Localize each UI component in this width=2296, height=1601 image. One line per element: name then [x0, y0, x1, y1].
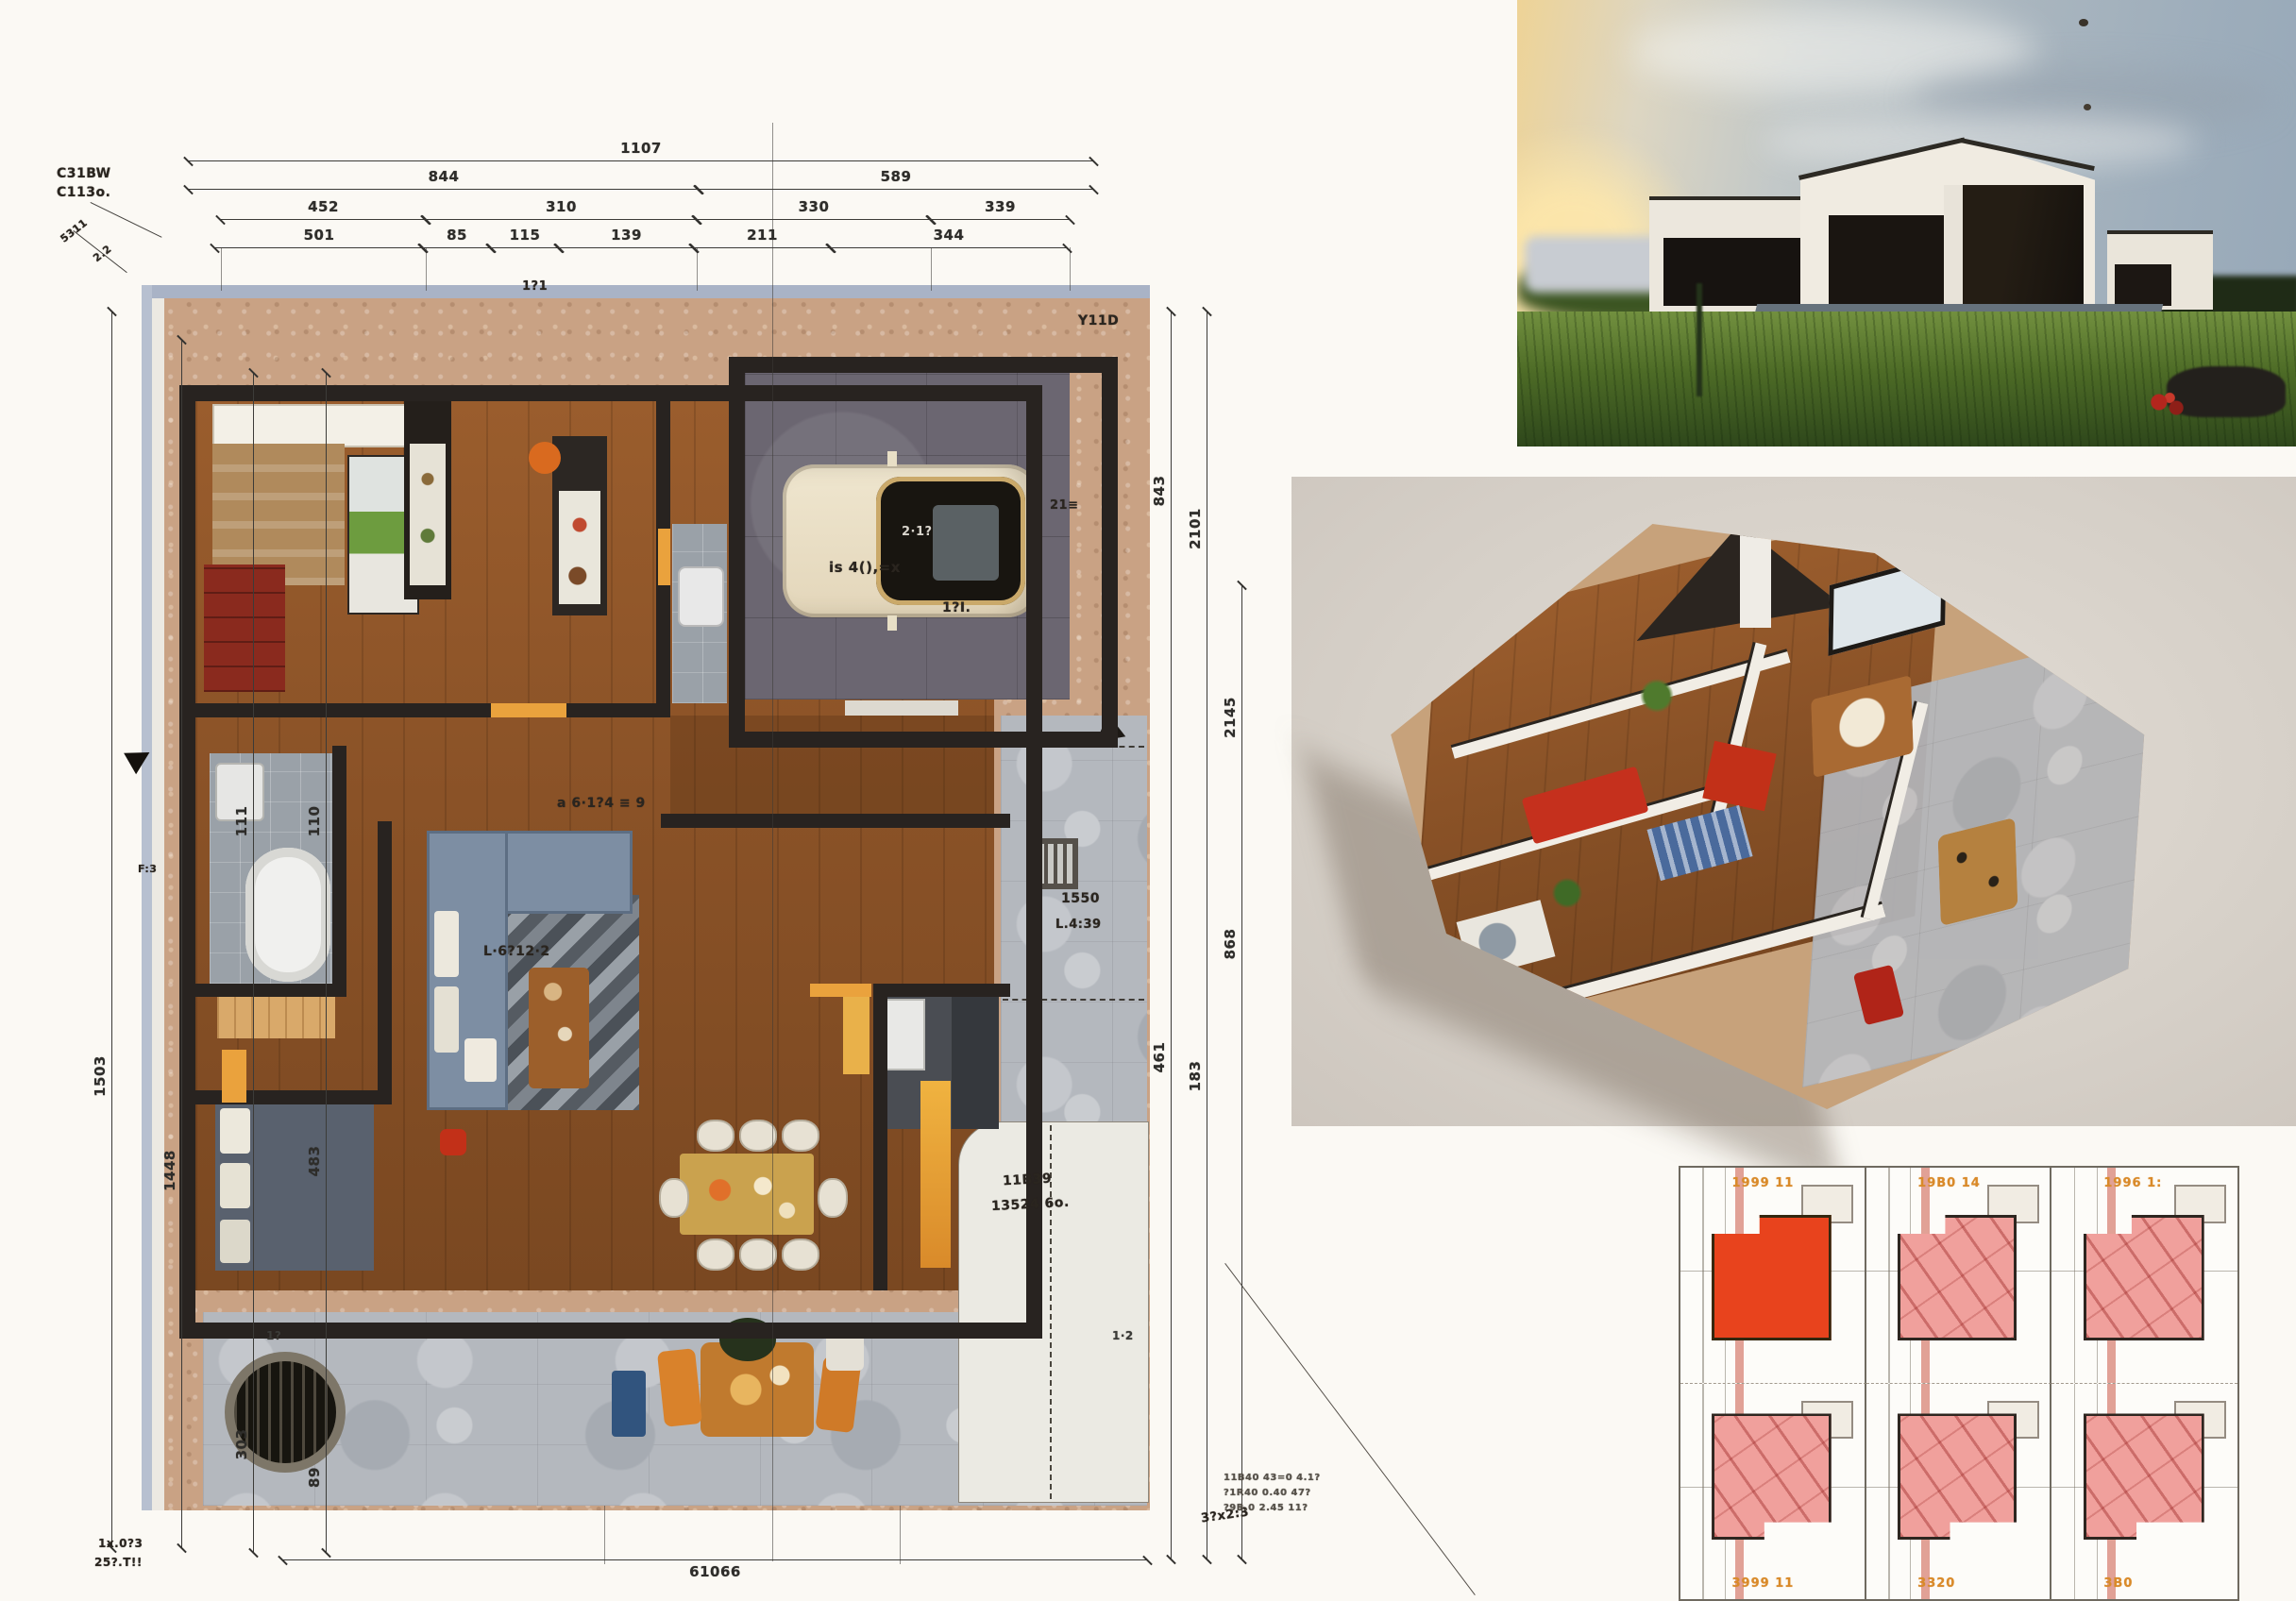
dim-label: 339	[985, 198, 1016, 215]
sapling	[1697, 283, 1702, 396]
wall-living-west	[378, 821, 392, 1104]
annotation-text: C113o.	[57, 185, 110, 200]
wall-kitchen-west	[873, 984, 887, 1290]
highlighted-room-shape	[2084, 1413, 2204, 1540]
dim-line-h	[423, 247, 491, 248]
dim-line-h	[189, 189, 699, 190]
dim-label: 1503	[92, 1055, 109, 1097]
wall-bath-south	[195, 984, 346, 997]
wall-kitchen-north	[873, 984, 1010, 997]
plan-variant-thumbnail: 3999 11	[1680, 1384, 1866, 1600]
dim-label: 1448	[161, 1150, 178, 1191]
dim-line-v	[253, 373, 254, 1553]
dim-label: 844	[429, 168, 460, 185]
annotation-text: 25?.T!!	[94, 1556, 143, 1569]
variant-code: 19B0 14	[1917, 1176, 1981, 1190]
variant-code: 3320	[1917, 1576, 1955, 1591]
plan-edge-band-top	[142, 285, 1150, 298]
annotation-text: L·6?12·2	[483, 944, 550, 959]
plan-edge-gap-left	[152, 298, 164, 1510]
dim-label: 452	[308, 198, 339, 215]
dim-label: 1107	[620, 140, 662, 157]
variant-code: 1996 1:	[2103, 1176, 2162, 1190]
threshold-1	[491, 703, 566, 717]
dim-line-h	[831, 247, 1067, 248]
drop-tick-4	[931, 247, 932, 291]
red-flowers	[2146, 391, 2189, 419]
plan-edge-band-left	[142, 285, 152, 1510]
house-glass-right	[1963, 185, 2084, 310]
dim-line-h	[697, 219, 931, 220]
variant-code: 3999 11	[1732, 1576, 1795, 1591]
bird-speck-2	[2084, 104, 2091, 110]
highlighted-room-shape	[2084, 1215, 2204, 1340]
dim-line-h	[931, 219, 1070, 220]
dim-line-v	[326, 373, 327, 1553]
sketch-line	[2074, 1168, 2076, 1383]
annotation-text: C31BW	[57, 166, 111, 181]
dim-label: 330	[799, 198, 830, 215]
highlighted-room-shape	[1898, 1413, 2017, 1540]
dim-label: 843	[1151, 476, 1168, 507]
highlighted-room-shape	[1712, 1413, 1832, 1540]
plan-variant-thumbnail: 3B0	[2051, 1384, 2237, 1600]
dim-line-h	[221, 219, 426, 220]
drop-tick-2	[426, 247, 427, 291]
dim-label: 2145	[1222, 697, 1239, 738]
threshold-3	[810, 984, 871, 997]
architectural-sheet: 1107844589452310330339501851151392113446…	[0, 0, 2296, 1601]
dim-label: 89	[306, 1467, 323, 1488]
plan-variant-thumbnail: 1999 11	[1680, 1168, 1866, 1384]
dim-label: 344	[934, 227, 965, 244]
dim-label: 183	[1187, 1061, 1204, 1092]
annotation-text: 1x.0?3	[98, 1537, 143, 1550]
annotation-text: 1?1	[522, 279, 548, 294]
annotation-text: 1?	[266, 1329, 281, 1342]
drop-tick-5	[1070, 247, 1071, 291]
annotation-text: 1?I.	[942, 600, 971, 615]
sketch-line	[1888, 1168, 1890, 1383]
drop-tick-1	[221, 247, 222, 291]
annotation-text: 2·1?	[902, 525, 933, 539]
dim-label: 589	[881, 168, 912, 185]
construction-line-v2	[604, 1506, 605, 1564]
dim-label: 501	[304, 227, 335, 244]
wall-bed2-north	[179, 1090, 382, 1104]
iso-red-wardrobe	[1702, 740, 1777, 811]
annotation-text: 11B40 43=0 4.1?	[1224, 1473, 1321, 1483]
plan-variant-thumbnail: 19B0 14	[1866, 1168, 2052, 1384]
car-blur	[1525, 236, 1668, 293]
annotation-text: ?9B.0 2.45 11?	[1224, 1503, 1308, 1513]
annotation-text: Y11D	[1078, 313, 1119, 329]
annotation-text: 1·2	[1112, 1329, 1134, 1342]
annotation-text: is 4(),=x	[829, 559, 901, 576]
plan-variants-grid: 1999 1119B0 141996 1:3999 1133203B0	[1679, 1166, 2239, 1601]
sketch-line	[1888, 1384, 1890, 1600]
dim-label: 303	[233, 1429, 250, 1460]
plan-variant-thumbnail: 1996 1:	[2051, 1168, 2237, 1384]
exterior-photo	[1517, 0, 2296, 447]
highlighted-room-shape	[1712, 1215, 1832, 1340]
variant-code: 3B0	[2103, 1576, 2133, 1591]
annotation-text: a 6·1?4 ≡ 9	[557, 796, 646, 811]
sketch-line	[1702, 1384, 1704, 1600]
dim-label: 868	[1222, 929, 1239, 960]
annotation-text: 1550	[1061, 891, 1100, 906]
dim-label: 61066	[689, 1563, 741, 1580]
dim-label: 111	[233, 806, 250, 837]
annotation-text: L.4:39	[1055, 918, 1102, 932]
dim-line-h	[283, 1559, 1147, 1560]
dim-label: 211	[747, 227, 778, 244]
dim-line-h	[559, 247, 694, 248]
annotation-text: F:3	[138, 863, 157, 875]
bird-speck-1	[2079, 19, 2088, 26]
iso-panel	[1291, 477, 2296, 1126]
outdoor-chair-left	[657, 1348, 702, 1427]
dim-line-v	[111, 312, 112, 1548]
dim-line-h	[491, 247, 559, 248]
outer-wall-garage	[729, 357, 1118, 748]
construction-line-v1	[772, 123, 773, 1561]
annotation-text: 11B39	[1003, 1171, 1053, 1189]
house-pillar	[1944, 185, 1963, 310]
dim-label: 310	[546, 198, 577, 215]
dim-line-v	[1241, 585, 1242, 1559]
dim-label: 461	[1151, 1042, 1168, 1073]
dim-line-v	[1171, 312, 1172, 1559]
threshold-2	[658, 529, 670, 585]
annotation-text: 21≡	[1050, 498, 1078, 513]
dim-line-h	[694, 247, 831, 248]
dim-label: 85	[447, 227, 467, 244]
dim-label: 139	[611, 227, 642, 244]
dim-line-h	[699, 189, 1093, 190]
outdoor-tray	[826, 1333, 864, 1371]
construction-line-v3	[900, 1506, 901, 1564]
highlighted-room-shape	[1898, 1215, 2017, 1340]
annotation-text: ?1R40 0.40 47?	[1224, 1488, 1311, 1498]
dim-line-v	[181, 340, 182, 1548]
dim-label: 2101	[1187, 508, 1204, 549]
house-glass-mid	[1829, 215, 1944, 310]
dim-label: 115	[510, 227, 541, 244]
house-left-glass	[1663, 238, 1800, 306]
iso-chimney	[1740, 524, 1772, 628]
leader-diagonal	[1224, 1263, 1476, 1595]
dim-label: 483	[306, 1146, 323, 1177]
garage-door-leaf	[845, 700, 958, 716]
cottage-glass	[2115, 264, 2171, 306]
wall-hall-dining	[661, 814, 1010, 828]
dim-line-h	[426, 219, 697, 220]
dim-label: 110	[306, 806, 323, 837]
plan-variant-thumbnail: 3320	[1866, 1384, 2052, 1600]
sketch-line	[2074, 1384, 2076, 1600]
threshold-4	[222, 1050, 246, 1103]
wall-bath-east	[332, 746, 346, 993]
drop-tick-3	[697, 247, 698, 291]
iso-plant-2	[1549, 875, 1585, 911]
dim-line-h	[215, 247, 423, 248]
outdoor-cooler	[612, 1371, 646, 1437]
dim-line-v	[1207, 312, 1207, 1559]
variant-code: 1999 11	[1732, 1176, 1795, 1190]
dim-line-h	[189, 160, 1093, 161]
iso-plant-1	[1637, 676, 1677, 716]
hook-line-2	[91, 202, 162, 238]
sketch-line	[1702, 1168, 1704, 1383]
